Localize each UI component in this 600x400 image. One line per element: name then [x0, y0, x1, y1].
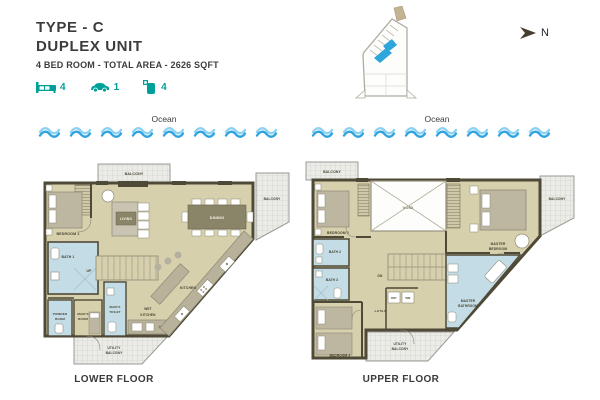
room-label-wet-kitchen: WET: [144, 307, 152, 311]
wardrobe: [447, 184, 460, 228]
utility-label: UTILITY: [374, 309, 386, 313]
room-label-bath2: BATH 2: [329, 250, 341, 254]
upper-floor-title: UPPER FLOOR: [301, 374, 501, 385]
svg-text:BALCONY: BALCONY: [106, 351, 124, 355]
lower-floor-plan: BALCONY BALCONY UTILITY BALCONY BEDROOM …: [12, 160, 297, 372]
baths-count: 4: [161, 82, 167, 93]
building-locator-map: [352, 6, 422, 111]
room-label-master-bedroom: MASTER: [491, 242, 506, 246]
room-label-dining: DINING: [210, 216, 225, 220]
room-label-bedroom2: BEDROOM 2: [327, 231, 349, 235]
room-label-balcony-top: BALCONY: [125, 172, 144, 176]
beds-count: 4: [60, 82, 66, 93]
page-title: TYPE - C DUPLEX UNIT: [36, 18, 143, 56]
floorplan-sheet: TYPE - C DUPLEX UNIT 4 BED ROOM - TOTAL …: [0, 0, 600, 400]
car-icon: [90, 81, 110, 93]
room-label-living: LIVING: [120, 217, 132, 221]
north-label: N: [541, 27, 549, 39]
ocean-label: Ocean: [35, 114, 293, 124]
cars-stat: 1: [90, 81, 120, 93]
room-label-balcony-right: BALCONY: [549, 197, 567, 201]
room-label-void: VOID: [403, 205, 414, 210]
dryer-label: DRY: [391, 296, 397, 300]
beds-stat: 4: [36, 81, 66, 94]
bath-icon: [143, 80, 157, 94]
north-indicator: N: [520, 24, 549, 42]
room-label-utility-balcony: UTILITY: [107, 346, 121, 350]
room-label-maids-toilet: MAID'S: [110, 305, 121, 309]
svg-text:ROOM: ROOM: [55, 317, 65, 321]
room-label-bath1: BATH 1: [62, 255, 75, 259]
north-arrow-icon: [520, 24, 537, 42]
ocean-left: Ocean: [35, 114, 293, 146]
unit-label: DUPLEX UNIT: [36, 37, 143, 56]
ocean-right: Ocean: [308, 114, 566, 146]
stairs-down-label: DN: [378, 274, 383, 278]
ocean-waves-right: [309, 125, 565, 141]
spec-line: 4 BED ROOM - TOTAL AREA - 2626 SQFT: [36, 60, 219, 70]
room-label-master-bathroom: MASTER: [461, 299, 476, 303]
room-label-kitchen: KITCHEN: [180, 286, 197, 290]
svg-text:BALCONY: BALCONY: [392, 347, 410, 351]
room-label-balcony-right: BALCONY: [264, 197, 282, 201]
unit-stats: 4 1 4: [36, 80, 167, 94]
stairs-up-label: UP: [86, 269, 92, 273]
type-label: TYPE - C: [36, 18, 143, 37]
room-label-powder: POWDER: [53, 312, 68, 316]
wardrobe: [358, 184, 369, 216]
stairs-up: [96, 256, 158, 280]
upper-floor-plan: BALCONY BALCONY UTILITY BALCONY VOID BED…: [300, 160, 585, 372]
bed-icon: [36, 81, 56, 94]
room-label-bedroom1: BEDROOM 1: [56, 232, 79, 236]
washer-label: WM: [406, 296, 411, 300]
room-label-utility-balcony: UTILITY: [393, 342, 407, 346]
lower-floor-title: LOWER FLOOR: [14, 374, 214, 385]
svg-text:KITCHEN: KITCHEN: [140, 313, 156, 317]
room-label-bedroom3: BEDROOM 3: [330, 354, 351, 358]
cars-count: 1: [114, 82, 120, 93]
baths-stat: 4: [143, 80, 167, 94]
svg-text:BATHROOM: BATHROOM: [458, 304, 478, 308]
room-label-maids-room: MAID'S: [77, 312, 88, 316]
svg-text:BEDROOM: BEDROOM: [489, 247, 507, 251]
svg-text:TOILET: TOILET: [109, 310, 120, 314]
ocean-waves-left: [36, 125, 292, 141]
ocean-label: Ocean: [308, 114, 566, 124]
room-label-bath3: BATH 3: [326, 278, 338, 282]
svg-text:ROOM: ROOM: [78, 317, 88, 321]
room-label-balcony-top: BALCONY: [323, 170, 341, 174]
